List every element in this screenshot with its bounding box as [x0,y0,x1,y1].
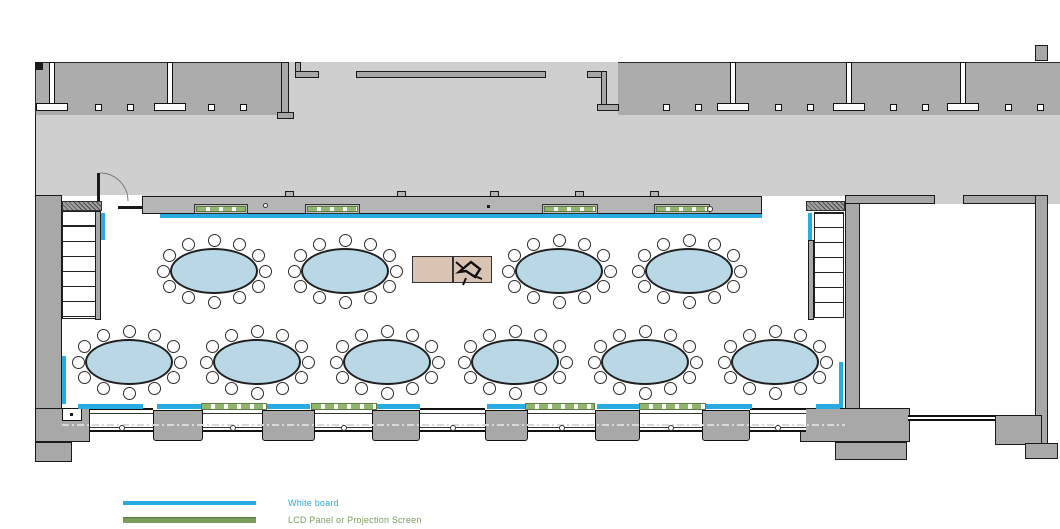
stair-treads [814,212,844,318]
chair [72,356,85,369]
window-center-dot [341,425,347,431]
chair [252,280,265,293]
window-mullion-square [807,104,814,111]
structural-column [846,62,852,106]
lcd-panel-segment [544,206,596,212]
window-glazing-line [640,413,702,414]
lcd-panel-segment [307,206,358,212]
chair [794,329,807,342]
wall-dot [263,203,268,208]
chair [743,329,756,342]
structural-column [154,103,186,111]
whiteboard-segment [62,356,66,404]
chair [604,265,617,278]
chair [597,280,610,293]
chair [208,296,221,309]
wall-dot [707,206,713,212]
chair [167,371,180,384]
banquet-table [170,248,258,294]
banquet-table [471,339,559,385]
banquet-table [731,339,819,385]
chair [502,265,515,278]
lcd-panel-segment [311,403,377,410]
chair [200,356,213,369]
structural-column [960,62,966,106]
lcd-panel-segment [196,206,246,212]
wall-segment [356,71,546,78]
chair [560,356,573,369]
chair [553,234,566,247]
chair [288,265,301,278]
right-partition-wall [845,195,860,416]
banquet-table [85,339,173,385]
chair [364,238,377,251]
chair [390,265,403,278]
wall-segment [1035,45,1048,61]
structural-column [36,103,68,111]
chair [769,387,782,400]
structural-column [947,103,979,111]
chair [683,371,696,384]
structural-column [717,103,749,111]
door-threshold [118,206,142,209]
chair [123,387,136,400]
window-glazing-line [203,413,262,414]
adjacent-room-top-wall [845,195,935,204]
chair [182,238,195,251]
whiteboard-segment [808,213,812,240]
adjacent-room-right-wall [1035,195,1048,447]
stair-treads [62,211,96,319]
whiteboard-legend-swatch [123,501,256,505]
banquet-table [515,248,603,294]
chair [769,325,782,338]
adjacent-room-pier-foot [1025,443,1058,459]
chair [509,325,522,338]
whiteboard-segment [816,404,840,409]
chair [276,329,289,342]
whiteboard-segment [597,404,642,409]
chair [251,387,264,400]
chair [483,329,496,342]
window-center-dot [450,425,456,431]
chair [383,280,396,293]
chair [708,238,721,251]
adjacent-room-floor [859,204,1035,415]
chair [683,296,696,309]
stair-handrail [808,240,814,320]
chair [251,325,264,338]
window-mullion-square [127,104,134,111]
floor-plan: White board LCD Panel or Projection Scre… [0,0,1060,529]
banquet-table [301,248,389,294]
door-leaf [97,173,100,202]
chair [330,356,343,369]
window-center-dot [230,425,236,431]
window-center-dot [775,425,781,431]
corner-pier-foot [35,442,72,462]
whiteboard-segment [839,362,843,408]
whiteboard-segment [377,404,420,409]
wall-dot [487,205,490,208]
adjacent-room-pier [995,415,1042,445]
chair [458,356,471,369]
chair [553,296,566,309]
window-glazing-line [90,413,153,414]
lcd-panel-segment [639,403,706,410]
window-center-dot [559,425,565,431]
chair [639,325,652,338]
legend-label: LCD Panel or Projection Screen [288,515,422,525]
window-glazing-line [750,413,806,414]
chair [148,329,161,342]
window-mullion-square [208,104,215,111]
lcd-legend-swatch [123,517,256,523]
chair [381,325,394,338]
wall-segment [295,71,319,78]
window-mullion-square [922,104,929,111]
window-glazing-line [315,413,372,414]
wall-segment [281,62,289,119]
chair [295,371,308,384]
chair [97,329,110,342]
chair [425,371,438,384]
chair [632,265,645,278]
chair [578,238,591,251]
chair [233,238,246,251]
legend-item-white-board: White board [123,498,339,508]
structural-column [167,62,173,106]
whiteboard-segment [487,404,530,409]
whiteboard-segment [157,404,202,409]
window-mullion-square [1037,104,1044,111]
structural-column [833,103,865,111]
lcd-panel-segment [201,403,267,410]
window-mullion-square [890,104,897,111]
chair [157,265,170,278]
chair [613,329,626,342]
chair [339,234,352,247]
banquet-table [601,339,689,385]
door-opening [100,195,142,215]
chair [509,387,522,400]
chair [727,280,740,293]
chair [225,329,238,342]
chair [664,329,677,342]
chair [690,356,703,369]
window-mullion-square [1005,104,1012,111]
whiteboard-segment [704,404,752,409]
whiteboard-segment [160,214,762,218]
left-exterior-wall [35,195,62,428]
chair [553,371,566,384]
chair [406,329,419,342]
banquet-table [645,248,733,294]
lcd-panel-segment [525,403,595,410]
window-mullion-square [775,104,782,111]
chair [683,234,696,247]
window-mullion-square [95,104,102,111]
structural-column [49,62,55,106]
wall-segment [597,104,619,111]
building-edge-line [35,115,36,195]
window-center-dot [119,425,125,431]
chair [302,356,315,369]
corner-mark [35,62,43,70]
chair [432,356,445,369]
chair [527,238,540,251]
whiteboard-segment [78,404,143,409]
chair [259,265,272,278]
window-glazing-line [420,413,485,414]
window-mullion-square [695,104,702,111]
window-mullion-square [240,104,247,111]
stair-landing-hatch [62,201,102,211]
chair [718,356,731,369]
chair [639,387,652,400]
whiteboard-segment [266,404,310,409]
chair [313,238,326,251]
window-center-dot [668,425,674,431]
chair [588,356,601,369]
podium-divider [452,256,454,283]
legend-item-lcd-panel: LCD Panel or Projection Screen [123,515,422,525]
chair [534,329,547,342]
banquet-table [213,339,301,385]
chair [355,329,368,342]
chair [208,234,221,247]
chair [123,325,136,338]
chair [813,371,826,384]
corner-dot [70,413,73,416]
window-glazing-line [528,413,595,414]
window-mullion-square [663,104,670,111]
banquet-table [343,339,431,385]
adjacent-room-bottom-wall [908,415,998,421]
structural-column [730,62,736,106]
wall-segment [277,112,294,119]
whiteboard-segment [101,213,105,240]
chair [339,296,352,309]
legend-label: White board [288,498,339,508]
chair [734,265,747,278]
chair [820,356,833,369]
lcd-panel-segment [656,206,708,212]
chair [657,238,670,251]
corner-pier-foot [835,442,907,460]
chair [174,356,187,369]
stair-landing-hatch [806,201,845,211]
chair [381,387,394,400]
